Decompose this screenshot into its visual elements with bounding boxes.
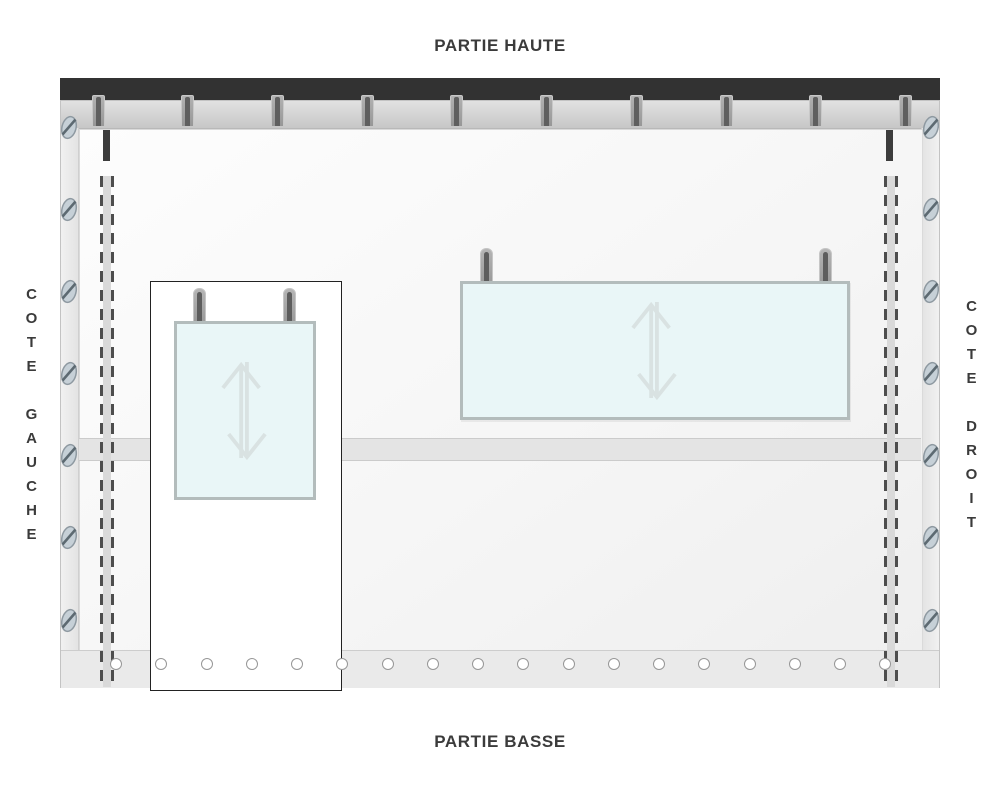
right-seam-dashed-line	[884, 176, 898, 687]
left-window	[174, 321, 316, 500]
label-cote-gauche: COTE GAUCHE	[21, 286, 41, 550]
screw-icon	[921, 607, 941, 634]
screw-icon	[921, 442, 941, 469]
screw-icon	[59, 360, 79, 387]
hook-icon	[92, 95, 105, 127]
hook-icon	[480, 248, 493, 284]
screw-icon	[921, 196, 941, 223]
screw-icon	[921, 360, 941, 387]
hook-icon	[361, 95, 374, 127]
up-down-arrow-icon	[221, 361, 269, 461]
right-strap-mark	[886, 130, 893, 161]
right-window	[460, 281, 850, 420]
screw-icon	[921, 114, 941, 141]
screw-icon	[59, 114, 79, 141]
eyelet-icon	[744, 658, 756, 670]
hook-icon	[271, 95, 284, 127]
screw-icon	[59, 278, 79, 305]
hook-icon	[809, 95, 822, 127]
screw-icon	[59, 524, 79, 551]
eyelet-icon	[834, 658, 846, 670]
label-partie-haute: PARTIE HAUTE	[0, 36, 1000, 56]
screw-icon	[921, 524, 941, 551]
eyelet-icon	[472, 658, 484, 670]
up-down-arrow-icon	[631, 301, 679, 401]
screw-icon	[59, 196, 79, 223]
hook-icon	[540, 95, 553, 127]
hook-icon	[193, 288, 206, 324]
eyelet-icon	[563, 658, 575, 670]
hook-icon	[630, 95, 643, 127]
eyelet-icon	[201, 658, 213, 670]
screw-icon	[59, 442, 79, 469]
left-seam-dashed-line	[100, 176, 114, 687]
hook-icon	[450, 95, 463, 127]
eyelet-icon	[789, 658, 801, 670]
eyelet-icon	[653, 658, 665, 670]
eyelet-icon	[291, 658, 303, 670]
label-cote-droit: COTE DROIT	[961, 298, 981, 538]
screw-icon	[59, 607, 79, 634]
eyelet-icon	[608, 658, 620, 670]
hook-icon	[283, 288, 296, 324]
eyelet-icon	[382, 658, 394, 670]
label-partie-basse: PARTIE BASSE	[0, 732, 1000, 752]
hook-icon	[899, 95, 912, 127]
hook-icon	[720, 95, 733, 127]
hook-icon	[819, 248, 832, 284]
hook-icon	[181, 95, 194, 127]
eyelet-icon	[246, 658, 258, 670]
screw-icon	[921, 278, 941, 305]
left-strap-mark	[103, 130, 110, 161]
eyelet-icon	[427, 658, 439, 670]
eyelet-icon	[110, 658, 122, 670]
tarp-plan-diagram: PARTIE HAUTE COTE GAUCHE COTE DROIT	[0, 0, 1000, 800]
